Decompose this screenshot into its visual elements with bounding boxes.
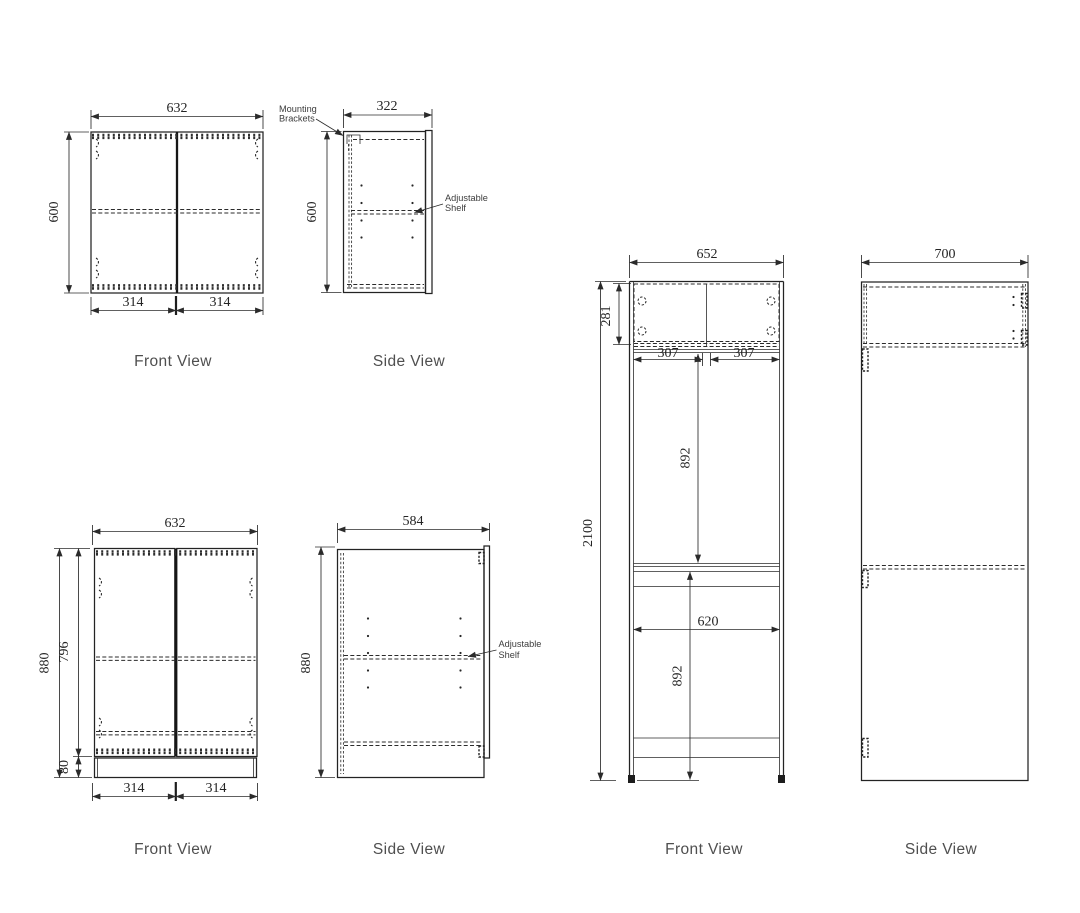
dimension-top-doors: 307 307	[634, 346, 780, 366]
bracket-mark	[863, 571, 869, 588]
note-mounting-line1: Mounting	[279, 104, 317, 114]
dim-text-lower-opening: 892	[671, 666, 686, 687]
dimension-width: 652	[630, 247, 784, 278]
dimension-height: 880	[299, 547, 335, 778]
shelf-pin-holes	[367, 617, 462, 688]
hinge-mark	[96, 139, 98, 159]
dimension-top-section: 281	[599, 284, 631, 345]
dim-text-door-right: 314	[210, 295, 231, 310]
note-shelf-line1: Adjustable	[499, 639, 542, 649]
dim-text-height: 880	[299, 653, 314, 674]
cabinet-drawing: 632 600 314 314 Front View	[0, 0, 1080, 913]
view-label: Side View	[373, 353, 446, 370]
foot	[628, 775, 635, 783]
view-label: Side View	[905, 841, 978, 858]
note-shelf-line2: Shelf	[445, 203, 466, 213]
dimension-width: 632	[91, 101, 263, 129]
leader-line	[468, 650, 497, 657]
hinge-mark	[767, 327, 775, 335]
dim-text-height: 600	[305, 202, 320, 223]
tall-cabinet-side-view: 700 Side View	[862, 247, 1029, 858]
annotation-mounting-brackets: Mounting Brackets	[279, 104, 343, 136]
dimension-doors: 314 314	[91, 295, 263, 315]
leader-line	[415, 204, 444, 213]
hinge-mark	[96, 258, 98, 278]
hinge-mark	[250, 578, 252, 598]
dimension-height-total: 2100	[581, 282, 626, 781]
dimension-plinth: 80	[57, 757, 79, 778]
hinge-mark	[250, 718, 252, 738]
view-label: Front View	[134, 353, 212, 370]
dim-text-lower-width: 620	[698, 615, 719, 630]
hinge-mark	[638, 327, 646, 335]
hinge-mark	[256, 258, 258, 278]
hinge-mark	[479, 746, 484, 757]
shelf-pin-holes	[1012, 296, 1014, 340]
hinge-mark	[99, 578, 101, 598]
annotation-adjustable-shelf: Adjustable Shelf	[468, 639, 541, 660]
plinth	[95, 758, 257, 778]
leader-line	[316, 119, 343, 136]
foot	[778, 775, 785, 783]
hinge-mark	[1022, 294, 1028, 309]
dim-text-height: 600	[47, 202, 62, 223]
hinge-mark	[1022, 331, 1028, 346]
shelf-pin-holes	[360, 184, 413, 238]
base-cabinet-front-view: 632 880 796 80 314 314 Front View	[38, 516, 258, 858]
wall-cabinet-side-view: 322 600 Mounting Brackets Adjustable She…	[279, 99, 488, 370]
dim-text-top-door-right: 307	[734, 346, 755, 361]
hinge-mark	[767, 297, 775, 305]
hinge-mark	[638, 297, 646, 305]
dim-text-door-left: 314	[123, 295, 144, 310]
dim-text-width: 652	[697, 247, 718, 262]
dimension-depth: 584	[338, 514, 490, 543]
dimension-upper-opening: 892	[679, 354, 699, 563]
slatted-door-left	[95, 549, 175, 757]
dim-text-depth: 700	[935, 247, 956, 262]
view-label: Side View	[373, 841, 446, 858]
dim-text-width: 632	[165, 516, 186, 531]
hinge-mark	[479, 553, 484, 564]
dimension-depth: 700	[862, 247, 1029, 278]
dim-text-depth: 584	[403, 514, 424, 529]
view-label: Front View	[134, 841, 212, 858]
dimension-door-height: 796	[57, 549, 92, 757]
note-shelf-line1: Adjustable	[445, 193, 488, 203]
door-edge	[426, 131, 433, 294]
hinge-mark	[256, 139, 258, 159]
dimension-height: 600	[47, 132, 89, 293]
dimension-width: 632	[93, 516, 258, 545]
dim-text-top-door-left: 307	[658, 346, 679, 361]
bracket-mark	[863, 739, 869, 758]
technical-drawing-page: 632 600 314 314 Front View	[0, 0, 1080, 913]
tall-cabinet-front-view: 652 2100 281 307 307 892 620	[581, 247, 785, 858]
dim-text-width: 632	[167, 101, 188, 116]
slatted-door-right	[177, 549, 257, 757]
dim-text-upper-opening: 892	[679, 448, 694, 469]
dim-text-door-left: 314	[124, 781, 145, 796]
dimension-height: 600	[305, 132, 342, 293]
dimension-doors: 314 314	[93, 781, 258, 801]
bracket-mark	[863, 349, 869, 371]
dim-text-door-right: 314	[206, 781, 227, 796]
dim-text-height: 2100	[581, 519, 596, 547]
dimension-depth: 322	[344, 99, 433, 128]
view-label: Front View	[665, 841, 743, 858]
dim-text-depth: 322	[377, 99, 398, 114]
wall-cabinet-front-view: 632 600 314 314 Front View	[47, 101, 263, 370]
note-shelf-line2: Shelf	[499, 650, 520, 660]
note-mounting-line2: Brackets	[279, 114, 315, 124]
cabinet-body	[338, 550, 485, 778]
dim-text-door-height: 796	[57, 642, 72, 663]
dim-text-height: 880	[38, 653, 53, 674]
dim-text-top-section: 281	[599, 306, 614, 327]
dimension-lower-width: 620	[634, 615, 780, 630]
cabinet-body	[344, 132, 426, 293]
dim-text-plinth: 80	[57, 760, 72, 774]
base-cabinet-side-view: 584 880 Adjustable Shelf Side View	[299, 514, 541, 858]
dimension-lower-opening: 892	[637, 572, 699, 781]
cabinet-body	[862, 282, 1029, 781]
